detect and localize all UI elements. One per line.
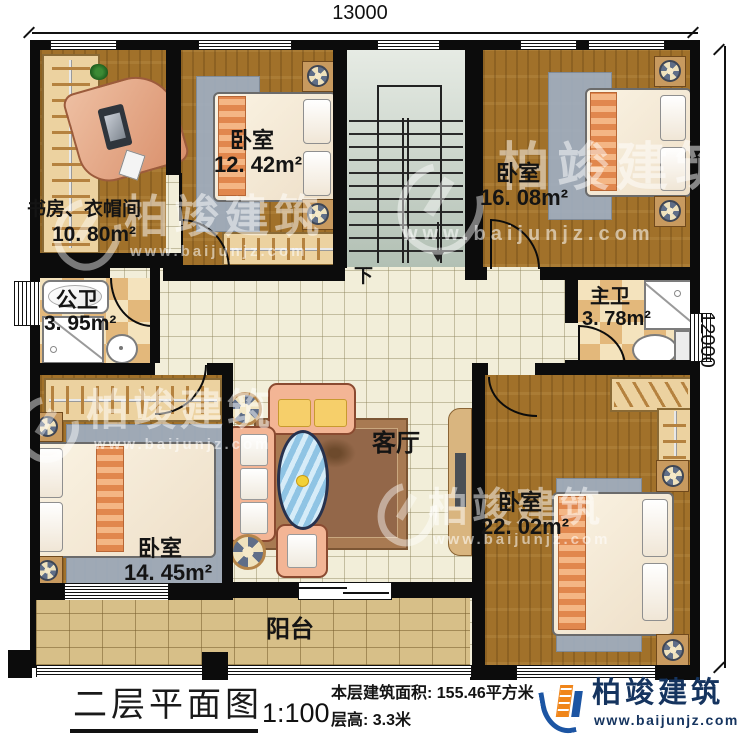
balcony-railing [36, 665, 472, 677]
balcony-post [8, 650, 32, 678]
watermark-url-text: www.baijunjz.com [94, 437, 271, 452]
nightstand-lamp [307, 65, 329, 87]
plan-title: 二层平面图 [73, 688, 263, 722]
floor-height-text: 层高: 3.3米 [331, 713, 411, 729]
wall-bedroom-sw-top [30, 363, 155, 375]
watermark-url-text: www.baijunjz.com [130, 244, 307, 259]
bedroom-se-nightstand [656, 634, 689, 666]
sofa-cushion [278, 399, 311, 427]
dimension-line-right [724, 46, 726, 668]
study-area: 10. 80m² [52, 224, 136, 245]
sofa-cushion [240, 468, 268, 500]
watermark-logo-bar [396, 494, 417, 521]
wall-bedroom-sw-bottom [163, 583, 233, 600]
wall-bedroom-se-top [472, 363, 488, 375]
balcony-sliding-door [298, 582, 392, 600]
bedroom-nw-label: 卧室 [230, 130, 274, 152]
nightstand-lamp [662, 639, 684, 661]
bedroom-se-pillow [642, 563, 668, 621]
bedroom-sw-area: 14. 45m² [124, 562, 212, 584]
bedroom-ne-pillow [660, 95, 686, 141]
wall-study-divider [166, 48, 181, 175]
watermark-logo-bar [423, 177, 454, 217]
nightstand-lamp [37, 560, 58, 581]
bedroom-se-nightstand [656, 460, 689, 492]
wall-stair-left [333, 48, 347, 268]
bath-master-area: 3. 78m² [582, 309, 651, 329]
fruit-bowl [296, 475, 309, 487]
logo-tower-blue [571, 691, 583, 717]
closet-hangers [614, 382, 687, 407]
window-bedroom-nw [198, 40, 292, 50]
dimension-line-top [32, 32, 698, 34]
shower-diagonal [644, 282, 692, 329]
dimension-top-value: 13000 [325, 3, 395, 23]
bedroom-se-closet-top [610, 377, 692, 412]
bedroom-se-area: 22. 02m² [481, 516, 569, 538]
bedroom-ne-label: 卧室 [496, 163, 540, 185]
wall-bath-public-top [30, 268, 110, 278]
watermark-brand-text: 柏竣建筑 [124, 194, 324, 239]
sofa-loveseat [268, 383, 356, 435]
shower-drain [674, 290, 681, 297]
bath-public-area: 3. 95m² [44, 313, 116, 334]
balcony-post [202, 652, 228, 680]
living-label: 客厅 [372, 432, 420, 456]
bedroom-se-closet-side [657, 408, 692, 462]
bedroom-ne-area: 16. 08m² [480, 187, 568, 209]
wall-bath-master-left [565, 268, 578, 323]
bedroom-sw-pillow [37, 502, 63, 552]
floorplan-canvas: 柏竣建筑 www.baijunjz.com 柏竣建筑 www.baijunjz.… [0, 0, 750, 747]
plan-title-underline [70, 729, 258, 733]
window-bedroom-ne [520, 40, 577, 50]
brand-name: 柏竣建筑 [592, 679, 724, 708]
slider-panel [343, 592, 389, 594]
wall-living-bottom [225, 582, 300, 598]
shower-drain [50, 346, 57, 353]
nightstand-lamp [659, 60, 681, 82]
armchair-cushion [287, 534, 317, 568]
stair-edge [377, 85, 379, 263]
watermark-logo-bar [35, 408, 57, 437]
watermark-url-text: www.baijunjz.com [402, 224, 655, 244]
window-bedroom-sw [64, 583, 169, 600]
bedroom-nw-pillow [303, 151, 331, 196]
bedroom-sw-label: 卧室 [138, 538, 182, 560]
desk-plant [90, 64, 108, 80]
bath-sink [106, 334, 138, 364]
nightstand-lamp [662, 465, 684, 487]
bedroom-se-label: 卧室 [498, 492, 542, 514]
floor-area-text: 本层建筑面积: 155.46平方米 [331, 686, 534, 702]
sink-drain [119, 346, 123, 350]
dimension-right-value: 12000 [697, 305, 717, 375]
closet-hangers [663, 412, 685, 459]
bedroom-ne-nightstand [654, 56, 686, 87]
nightstand-lamp [659, 200, 681, 222]
window-bedroom-ne [588, 40, 665, 50]
bedroom-sw-blanket [96, 446, 124, 552]
wall-living-bottom [388, 582, 480, 598]
window-study [50, 40, 117, 50]
bedroom-nw-pillow [303, 99, 331, 144]
armchair [276, 524, 328, 578]
bath-public-label: 公卫 [56, 290, 98, 311]
wall-bedroom-ne-bottom [465, 267, 487, 280]
wall-bedroom-se-bottom [470, 665, 520, 680]
watermark-brand-text: 柏竣建筑 [86, 390, 274, 433]
shower [644, 280, 692, 330]
sofa-cushion [240, 502, 268, 534]
bedroom-se-pillow [642, 499, 668, 557]
study-label: 书房、衣帽间 [27, 200, 141, 219]
bath-master-label: 主卫 [590, 287, 630, 307]
plan-scale: 1:100 [262, 700, 330, 727]
bedroom-nw-nightstand [302, 61, 334, 92]
wall-bedroom-se-top [535, 363, 578, 375]
balcony-floor [36, 598, 470, 665]
brand-website: www.baijunjz.com [594, 713, 739, 727]
balcony-label: 阳台 [266, 618, 314, 642]
window-bath-public [14, 281, 40, 326]
wall-bedroom-ne-bottom [540, 267, 700, 280]
coffee-table [277, 430, 329, 530]
slider-panel [299, 587, 347, 589]
brand-logo-icon [542, 682, 588, 736]
stair-landing-edge [377, 85, 442, 87]
window-stairwell [377, 40, 440, 50]
bedroom-ne-nightstand [654, 196, 686, 227]
sofa-cushion [314, 399, 347, 427]
bedroom-nw-area: 12. 42m² [214, 154, 302, 176]
monitor-screen [104, 112, 126, 141]
side-table [230, 534, 266, 570]
stair-down-label: 下 [354, 267, 373, 286]
